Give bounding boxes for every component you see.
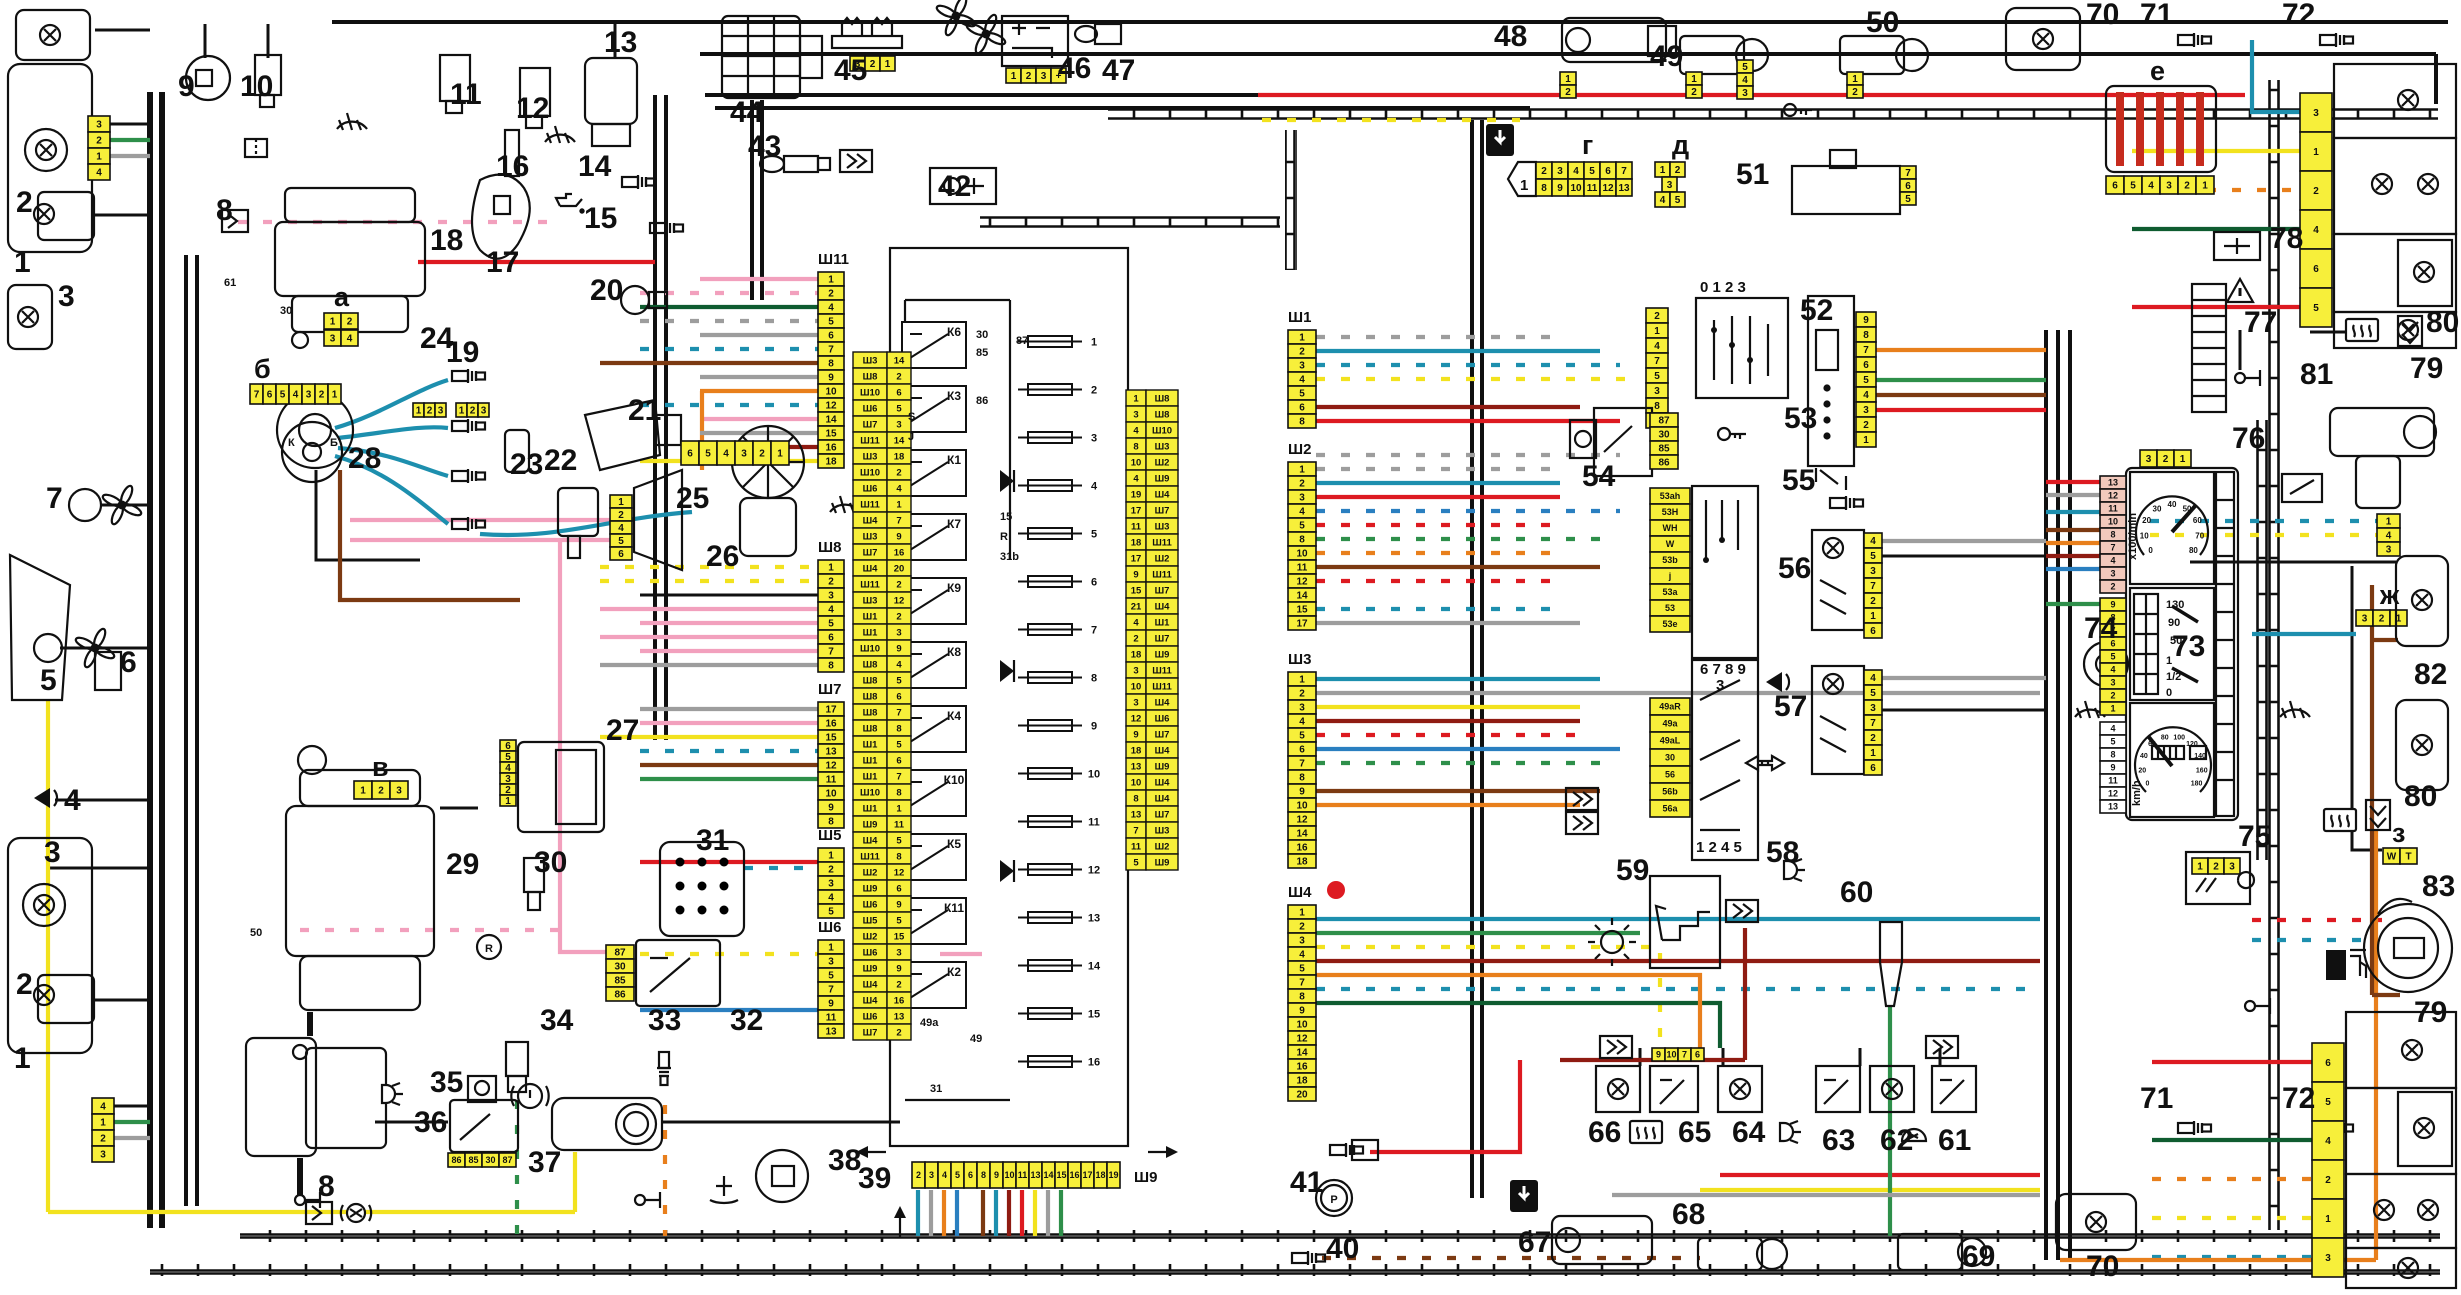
- svg-text:Ш3: Ш3: [863, 595, 878, 606]
- svg-text:7: 7: [1870, 581, 1876, 592]
- svg-text:2: 2: [378, 786, 384, 797]
- svg-text:1: 1: [459, 406, 465, 417]
- svg-text:Ш3: Ш3: [863, 355, 878, 366]
- svg-text:70: 70: [2195, 532, 2204, 541]
- svg-text:Ш11: Ш11: [1152, 537, 1172, 548]
- svg-text:5: 5: [1863, 375, 1869, 386]
- svg-text:86: 86: [614, 990, 626, 1001]
- svg-text:4: 4: [1299, 507, 1305, 518]
- svg-text:6: 6: [267, 390, 273, 401]
- svg-text:8: 8: [216, 194, 233, 227]
- svg-text:5: 5: [1299, 731, 1305, 742]
- foglamp-icon: [382, 1083, 403, 1105]
- svg-text:Ш7: Ш7: [1155, 729, 1170, 740]
- svg-text:12: 12: [825, 401, 837, 412]
- svg-text:4: 4: [2386, 531, 2392, 542]
- svg-text:1: 1: [896, 499, 902, 510]
- sh1-strip: 1234568: [1288, 330, 1316, 428]
- svg-text:14: 14: [1043, 1170, 1053, 1180]
- svg-text:К6: К6: [947, 325, 961, 339]
- svg-text:10: 10: [1004, 1170, 1014, 1180]
- svg-text:W: W: [2387, 852, 2397, 863]
- svg-text:5: 5: [828, 971, 834, 982]
- svg-text:Ш3: Ш3: [1155, 441, 1170, 452]
- svg-text:9: 9: [1091, 720, 1097, 732]
- svg-text:15: 15: [894, 931, 905, 942]
- svg-text:6: 6: [120, 646, 137, 679]
- svg-text:2: 2: [870, 59, 876, 70]
- svg-text:9: 9: [896, 643, 901, 654]
- svg-text:T: T: [2405, 852, 2411, 863]
- svg-text:Ш3: Ш3: [1288, 651, 1311, 668]
- svg-text:5: 5: [1299, 521, 1305, 532]
- svg-text:6: 6: [1870, 763, 1876, 774]
- svg-text:9: 9: [828, 803, 834, 814]
- svg-text:Ш8: Ш8: [818, 539, 841, 556]
- svg-text:3: 3: [2386, 545, 2392, 556]
- switch-56: [1812, 530, 1864, 630]
- svg-text:Ш11: Ш11: [1152, 681, 1172, 692]
- svg-text:Ш7: Ш7: [1155, 809, 1170, 820]
- svg-text:3: 3: [1863, 405, 1869, 416]
- svg-text:2: 2: [1691, 87, 1697, 98]
- svg-text:Ш11: Ш11: [860, 435, 880, 446]
- svg-text:2: 2: [759, 449, 765, 460]
- svg-text:3: 3: [1716, 677, 1724, 694]
- block-right-table: 1Ш83Ш84Ш108Ш310Ш24Ш919Ш417Ш711Ш318Ш1117Ш…: [1126, 390, 1178, 870]
- svg-text:6: 6: [896, 883, 901, 894]
- svg-text:3: 3: [306, 390, 312, 401]
- conn-53: 987654321: [1856, 312, 1876, 447]
- svg-text:7: 7: [1621, 166, 1627, 177]
- svg-text:8: 8: [1863, 330, 1869, 341]
- svg-text:20: 20: [2138, 767, 2146, 774]
- svg-text:18: 18: [1131, 537, 1142, 548]
- svg-text:Ш11: Ш11: [860, 851, 880, 862]
- svg-text:3: 3: [44, 836, 61, 869]
- svg-text:P: P: [1330, 1194, 1337, 1206]
- svg-text:К3: К3: [947, 389, 961, 403]
- svg-text:Ш4: Ш4: [1155, 745, 1171, 756]
- svg-text:50: 50: [2170, 635, 2182, 647]
- svg-text:9: 9: [896, 899, 901, 910]
- svg-text:22: 22: [544, 444, 577, 477]
- connector-78: [2214, 232, 2260, 260]
- svg-text:Ш11: Ш11: [860, 579, 880, 590]
- svg-text:К11: К11: [944, 901, 964, 915]
- svg-text:4: 4: [2313, 225, 2319, 236]
- svg-text:55: 55: [1782, 464, 1815, 497]
- svg-text:49a: 49a: [920, 1017, 939, 1029]
- svg-text:16: 16: [1296, 843, 1308, 854]
- svg-text:86: 86: [976, 395, 988, 407]
- headlamp-top-connector: 3214: [88, 116, 110, 180]
- block-arrows: [856, 1146, 1178, 1238]
- svg-text:3: 3: [396, 786, 402, 797]
- svg-text:15: 15: [1056, 1170, 1066, 1180]
- svg-text:Ш4: Ш4: [863, 563, 879, 574]
- svg-text:2: 2: [1675, 165, 1681, 176]
- svg-text:10: 10: [2140, 532, 2149, 541]
- svg-text:Ш1: Ш1: [863, 771, 879, 782]
- svg-text:11: 11: [894, 819, 905, 830]
- svg-text:7: 7: [828, 985, 834, 996]
- svg-text:4: 4: [2148, 181, 2154, 192]
- svg-text:1: 1: [1654, 326, 1660, 337]
- svg-text:18: 18: [1296, 857, 1308, 868]
- sh7-strip: 1716151312111098: [818, 702, 844, 828]
- svg-text:2: 2: [1870, 596, 1876, 607]
- svg-text:40: 40: [1326, 1232, 1359, 1265]
- svg-text:1: 1: [2313, 147, 2319, 158]
- svg-text:j: j: [1668, 571, 1672, 581]
- svg-text:W: W: [1666, 539, 1675, 549]
- svg-text:7: 7: [1682, 1050, 1687, 1060]
- svg-text:К: К: [288, 437, 295, 449]
- svg-text:60: 60: [2148, 741, 2156, 748]
- conn-a-row1: 12: [324, 313, 358, 329]
- ground-battery: [295, 1192, 320, 1208]
- svg-text:7: 7: [828, 647, 834, 658]
- svg-text:4: 4: [2110, 665, 2115, 675]
- svg-text:6: 6: [896, 387, 901, 398]
- svg-text:85: 85: [1658, 444, 1670, 455]
- svg-text:14: 14: [1296, 591, 1308, 602]
- svg-text:18: 18: [1131, 649, 1142, 660]
- svg-text:1: 1: [828, 275, 834, 286]
- conn-48: 12: [1560, 72, 1576, 98]
- svg-text:80: 80: [2161, 734, 2169, 741]
- ground-tail-bottom: [2245, 998, 2270, 1014]
- svg-text:53: 53: [1784, 402, 1817, 435]
- svg-text:5: 5: [896, 403, 902, 414]
- svg-text:1/2: 1/2: [2166, 671, 2181, 683]
- svg-text:8: 8: [896, 787, 901, 798]
- sh6-strip: 135791113: [818, 940, 844, 1038]
- svg-text:71: 71: [2140, 1082, 2173, 1115]
- sh5-strip: 12345: [818, 848, 844, 918]
- column-switch-58-lower: [1692, 660, 1758, 860]
- svg-text:31: 31: [696, 824, 729, 857]
- svg-text:Ш2: Ш2: [1155, 457, 1170, 468]
- switch-57: [1812, 666, 1864, 774]
- svg-text:3: 3: [929, 1170, 934, 1180]
- svg-text:3: 3: [2325, 1253, 2331, 1264]
- svg-text:7: 7: [1133, 825, 1138, 836]
- sensor-71-top: [2178, 33, 2211, 47]
- conn-tail-top: 312465: [2300, 93, 2332, 327]
- svg-text:2: 2: [1299, 689, 1305, 700]
- svg-text:1: 1: [2386, 517, 2392, 528]
- svg-text:47: 47: [1102, 54, 1135, 87]
- svg-text:2: 2: [1299, 922, 1305, 933]
- svg-text:8: 8: [896, 723, 901, 734]
- svg-text:3: 3: [1041, 71, 1047, 82]
- svg-text:18: 18: [1131, 745, 1142, 756]
- svg-text:Ш8: Ш8: [863, 707, 878, 718]
- defrost-icon-80b: [2324, 809, 2356, 831]
- svg-text:3: 3: [58, 280, 75, 313]
- svg-text:6: 6: [828, 633, 834, 644]
- conn-50b: 543: [1737, 60, 1753, 99]
- svg-text:75: 75: [2238, 820, 2271, 853]
- svg-text:64: 64: [1732, 1116, 1766, 1149]
- svg-text:Ш8: Ш8: [1155, 409, 1170, 420]
- svg-text:1: 1: [1011, 71, 1017, 82]
- svg-text:Ш1: Ш1: [1288, 309, 1311, 326]
- door-icon-67: [1510, 1180, 1538, 1212]
- svg-text:7: 7: [1091, 624, 1097, 636]
- svg-text:1: 1: [2325, 1214, 2331, 1225]
- svg-text:4: 4: [1133, 473, 1139, 484]
- svg-text:13: 13: [1618, 183, 1630, 194]
- svg-text:К1: К1: [947, 453, 961, 467]
- svg-text:2: 2: [896, 979, 901, 990]
- svg-text:12: 12: [1131, 713, 1142, 724]
- svg-text:1: 1: [14, 246, 31, 279]
- svg-text:6: 6: [2313, 264, 2319, 275]
- svg-text:5: 5: [1905, 194, 1911, 205]
- svg-text:12: 12: [1088, 864, 1100, 876]
- svg-text:5: 5: [828, 619, 834, 630]
- svg-text:69: 69: [1962, 1240, 1995, 1273]
- wiring-diagram-page: 3214 4123: [0, 0, 2461, 1295]
- svg-text:87: 87: [502, 1155, 512, 1165]
- svg-text:R: R: [485, 943, 493, 955]
- svg-text:Ш1: Ш1: [1155, 617, 1171, 628]
- conn-81: 143: [2377, 514, 2400, 556]
- svg-text:6: 6: [968, 1170, 973, 1180]
- conn-cluster-top: 321: [2140, 450, 2191, 467]
- svg-text:Ш8: Ш8: [1155, 393, 1170, 404]
- svg-text:1: 1: [416, 406, 422, 417]
- sh4-red-dot: [1327, 881, 1345, 899]
- horn-icon-57: [1766, 672, 1789, 692]
- svg-text:11: 11: [1587, 183, 1598, 194]
- svg-text:50: 50: [250, 927, 262, 939]
- svg-text:Ш1: Ш1: [863, 755, 879, 766]
- side-lamps: [8, 285, 52, 349]
- svg-text:2: 2: [470, 406, 476, 417]
- svg-text:Ш2: Ш2: [1155, 841, 1170, 852]
- svg-text:21: 21: [1131, 601, 1142, 612]
- svg-text:72: 72: [2282, 1082, 2315, 1115]
- svg-text:4: 4: [942, 1170, 947, 1180]
- svg-text:71: 71: [2140, 0, 2173, 31]
- warning-triangle-icon: [2227, 279, 2253, 302]
- svg-text:а: а: [334, 282, 350, 312]
- svg-text:70: 70: [2086, 1250, 2119, 1283]
- svg-text:Ш9: Ш9: [863, 819, 878, 830]
- svg-text:4: 4: [1133, 425, 1139, 436]
- svg-text:62: 62: [1880, 1124, 1913, 1157]
- svg-text:76: 76: [2232, 422, 2265, 455]
- svg-text:8: 8: [828, 817, 834, 828]
- svg-text:6: 6: [1863, 360, 1869, 371]
- svg-text:56a: 56a: [1662, 804, 1678, 814]
- svg-text:Ш5: Ш5: [818, 827, 841, 844]
- svg-text:12: 12: [894, 595, 905, 606]
- chev-61: [1926, 1036, 1958, 1058]
- svg-text:30: 30: [1658, 430, 1670, 441]
- svg-text:4: 4: [896, 659, 902, 670]
- svg-text:5: 5: [1133, 857, 1139, 868]
- svg-text:1: 1: [1299, 465, 1305, 476]
- svg-text:2: 2: [1863, 420, 1869, 431]
- svg-text:1: 1: [330, 317, 336, 328]
- svg-text:1: 1: [2166, 655, 2172, 667]
- svg-text:3: 3: [1133, 697, 1138, 708]
- svg-text:3: 3: [2146, 454, 2152, 465]
- svg-text:Ш10: Ш10: [860, 467, 880, 478]
- svg-text:2: 2: [2163, 454, 2169, 465]
- svg-text:Ш7: Ш7: [863, 1027, 878, 1038]
- svg-text:6: 6: [828, 331, 834, 342]
- svg-text:1: 1: [1660, 165, 1666, 176]
- svg-text:6: 6: [1091, 576, 1097, 588]
- svg-text:67: 67: [1518, 1226, 1551, 1259]
- svg-text:6: 6: [2325, 1058, 2331, 1069]
- svg-text:3: 3: [2166, 181, 2172, 192]
- svg-text:J: J: [908, 431, 914, 443]
- svg-text:4: 4: [828, 605, 834, 616]
- svg-text:12: 12: [1296, 577, 1308, 588]
- svg-text:15: 15: [825, 733, 837, 744]
- svg-text:1: 1: [2197, 862, 2203, 873]
- sh8-strip: 12345678: [818, 560, 844, 672]
- svg-text:140: 140: [2194, 753, 2206, 760]
- svg-text:4: 4: [1299, 950, 1305, 961]
- svg-text:14: 14: [1296, 1048, 1308, 1059]
- svg-text:13: 13: [894, 1011, 905, 1022]
- svg-text:10: 10: [1131, 777, 1142, 788]
- svg-text:11: 11: [1297, 563, 1308, 574]
- svg-text:10: 10: [1666, 1050, 1676, 1060]
- svg-text:35: 35: [430, 1066, 463, 1099]
- svg-text:7: 7: [1870, 718, 1876, 729]
- svg-text:17: 17: [486, 246, 519, 279]
- svg-text:72: 72: [2282, 0, 2315, 31]
- svg-text:6 7 8 9: 6 7 8 9: [1700, 661, 1746, 678]
- block-fuses: 12345678910111213141516: [1018, 336, 1101, 1068]
- svg-text:1: 1: [1852, 74, 1858, 85]
- defrost-icon-row: [1630, 1121, 1662, 1143]
- svg-text:12: 12: [894, 867, 905, 878]
- conn-d-row3: 45: [1655, 192, 1685, 207]
- svg-text:6: 6: [896, 755, 901, 766]
- svg-text:5: 5: [1675, 195, 1681, 206]
- svg-text:11: 11: [2108, 504, 2118, 514]
- svg-text:Ш6: Ш6: [863, 1011, 878, 1022]
- svg-text:2: 2: [347, 317, 353, 328]
- svg-text:2: 2: [1565, 87, 1571, 98]
- svg-text:11: 11: [1131, 841, 1142, 852]
- svg-text:2: 2: [896, 579, 901, 590]
- svg-text:10: 10: [825, 789, 837, 800]
- conn-54: 87308586: [1650, 413, 1678, 469]
- svg-text:6: 6: [1695, 1050, 1700, 1060]
- fan-shroud-lamp: [10, 555, 121, 700]
- svg-text:60: 60: [2193, 516, 2202, 525]
- svg-text:К5: К5: [947, 837, 961, 851]
- svg-text:49aL: 49aL: [1660, 736, 1681, 746]
- svg-text:5: 5: [1870, 551, 1876, 562]
- conn-49: 12: [1686, 72, 1702, 98]
- svg-text:1: 1: [828, 563, 834, 574]
- svg-text:87: 87: [1658, 416, 1670, 427]
- svg-text:60: 60: [1840, 876, 1873, 909]
- svg-text:53a: 53a: [1662, 587, 1678, 597]
- svg-text:Ш9: Ш9: [1155, 649, 1170, 660]
- svg-text:2: 2: [828, 865, 834, 876]
- svg-text:10: 10: [2108, 517, 2118, 527]
- ground-2: [635, 1192, 660, 1208]
- conn-a-row2: 34: [324, 330, 358, 346]
- svg-text:1: 1: [332, 390, 338, 401]
- svg-text:2: 2: [2213, 862, 2219, 873]
- svg-text:29: 29: [446, 848, 479, 881]
- svg-text:Ш7: Ш7: [1155, 585, 1170, 596]
- svg-text:81: 81: [2300, 358, 2333, 391]
- svg-text:2: 2: [100, 1134, 106, 1145]
- svg-text:Ш11: Ш11: [818, 251, 849, 268]
- svg-text:0 1 2 3: 0 1 2 3: [1700, 279, 1746, 296]
- svg-text:1: 1: [618, 497, 624, 508]
- horn-left: [34, 788, 57, 808]
- svg-text:30: 30: [485, 1155, 495, 1165]
- svg-text:Ш6: Ш6: [863, 947, 878, 958]
- svg-text:5: 5: [280, 390, 286, 401]
- bulb-47: [1075, 24, 1121, 44]
- svg-text:7: 7: [1863, 345, 1869, 356]
- svg-text:Ш5: Ш5: [863, 915, 879, 926]
- svg-text:1: 1: [896, 803, 902, 814]
- svg-text:2: 2: [828, 577, 834, 588]
- svg-text:1: 1: [828, 851, 834, 862]
- svg-text:Ш4: Ш4: [1155, 793, 1171, 804]
- sh2-strip: 123458101112141517: [1288, 462, 1316, 630]
- svg-text:1: 1: [1870, 611, 1876, 622]
- svg-text:5: 5: [1299, 389, 1305, 400]
- svg-text:7: 7: [1905, 168, 1911, 179]
- pump-13: [585, 58, 637, 146]
- svg-text:Ш3: Ш3: [863, 531, 878, 542]
- svg-text:17: 17: [1131, 505, 1142, 516]
- svg-text:53b: 53b: [1662, 555, 1678, 565]
- svg-text:9: 9: [1299, 787, 1305, 798]
- svg-text:Ш4: Ш4: [1155, 601, 1171, 612]
- svg-text:3: 3: [2229, 862, 2235, 873]
- svg-text:14: 14: [1296, 829, 1308, 840]
- svg-text:4: 4: [2110, 556, 2115, 566]
- svg-text:42: 42: [938, 170, 971, 203]
- svg-text:8: 8: [1299, 417, 1305, 428]
- headlamp-bottom-connector: 4123: [92, 1098, 114, 1162]
- svg-text:1: 1: [828, 943, 834, 954]
- svg-text:5: 5: [2313, 303, 2319, 314]
- svg-text:4: 4: [1870, 673, 1876, 684]
- chev-58b: [1566, 812, 1598, 834]
- svg-text:83: 83: [2422, 870, 2455, 903]
- svg-text:5: 5: [896, 835, 902, 846]
- svg-text:7: 7: [896, 515, 901, 526]
- svg-text:61: 61: [1938, 1124, 1971, 1157]
- svg-text:6: 6: [1905, 181, 1911, 192]
- svg-text:km/h: km/h: [2131, 780, 2143, 806]
- main-light-switch-37: [552, 1098, 662, 1150]
- svg-text:9: 9: [896, 963, 901, 974]
- repeater-70-top: [2006, 8, 2080, 70]
